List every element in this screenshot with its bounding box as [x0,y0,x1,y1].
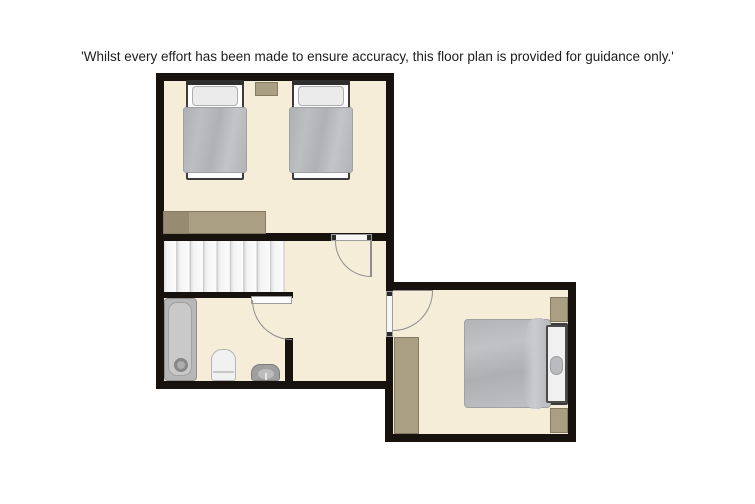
headboard-cushion [550,356,563,375]
floor-plan [0,0,755,504]
double-bed-headboard [546,325,567,403]
nightstand [550,408,568,433]
bed-headboard [186,80,244,85]
staircase [164,241,285,292]
bed-pillow [298,86,344,106]
nightstand [255,82,278,96]
twin-bedroom-door [331,234,372,241]
door-hinge-icon [332,235,336,240]
dresser-section [164,212,189,233]
washbasin [211,349,236,381]
door-hinge-icon [367,235,371,240]
toilet-flush-icon [265,373,267,380]
bed-pillow [192,86,238,106]
double-bedroom-door [386,291,393,337]
single-bed-1-duvet [183,107,247,173]
door-hinge-icon [387,332,392,336]
nightstand [550,297,568,322]
wardrobe [394,337,419,434]
single-bed-2-duvet [289,107,353,173]
wall-bathroom-hallway [285,338,293,381]
toilet [251,364,280,381]
dresser [163,211,266,234]
bed-headboard [292,80,350,85]
double-bed-duvet [464,319,551,408]
bathtub-drain-icon [174,358,188,372]
washbasin-edge [213,371,234,373]
floor-plan-page: 'Whilst every effort has been made to en… [0,0,755,504]
door-hinge-icon [387,292,392,296]
bathtub [164,298,197,381]
